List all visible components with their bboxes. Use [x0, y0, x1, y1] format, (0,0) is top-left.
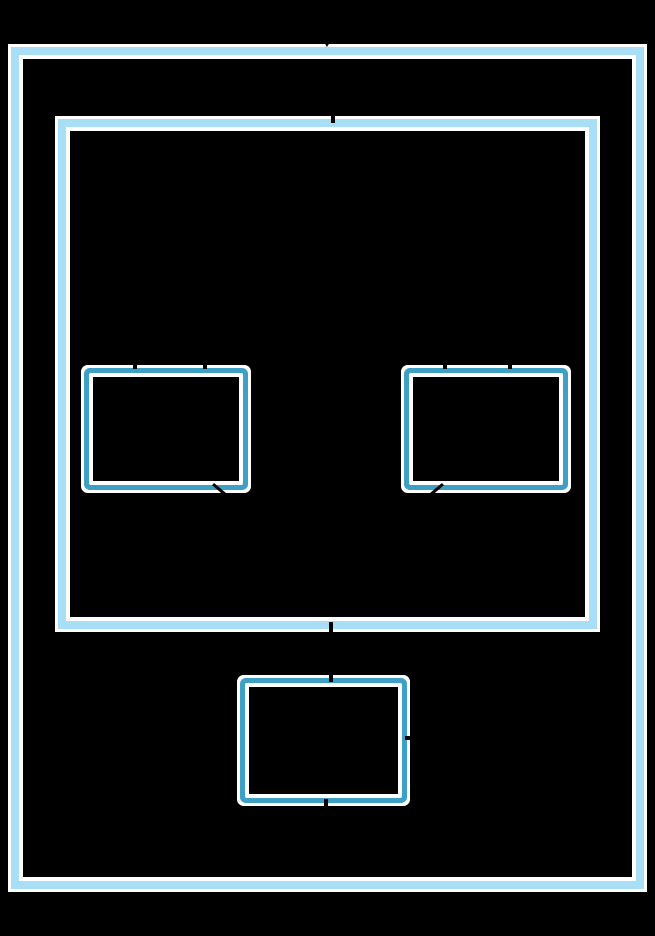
diagram-canvas	[0, 0, 655, 936]
edge-fragment-inner-cluster-top	[331, 111, 335, 123]
edge-fragment-node-right-top-1	[443, 359, 447, 369]
node-left-box	[89, 373, 243, 485]
edge-fragment-node-bottom-top	[329, 670, 333, 682]
arrowhead-into-outer-cluster-icon	[321, 37, 333, 47]
edge-fragment-node-left-top-1	[133, 359, 137, 369]
edge-fragment-node-bottom-bottom	[324, 799, 328, 810]
edge-fragment-inner-cluster-bottom	[329, 622, 333, 636]
edge-fragment-node-right-top-2	[508, 359, 512, 369]
node-bottom-box	[245, 683, 402, 798]
node-right-box	[409, 373, 563, 485]
edge-fragment-node-left-top-2	[203, 359, 207, 369]
edge-fragment-node-bottom-right	[405, 736, 414, 740]
